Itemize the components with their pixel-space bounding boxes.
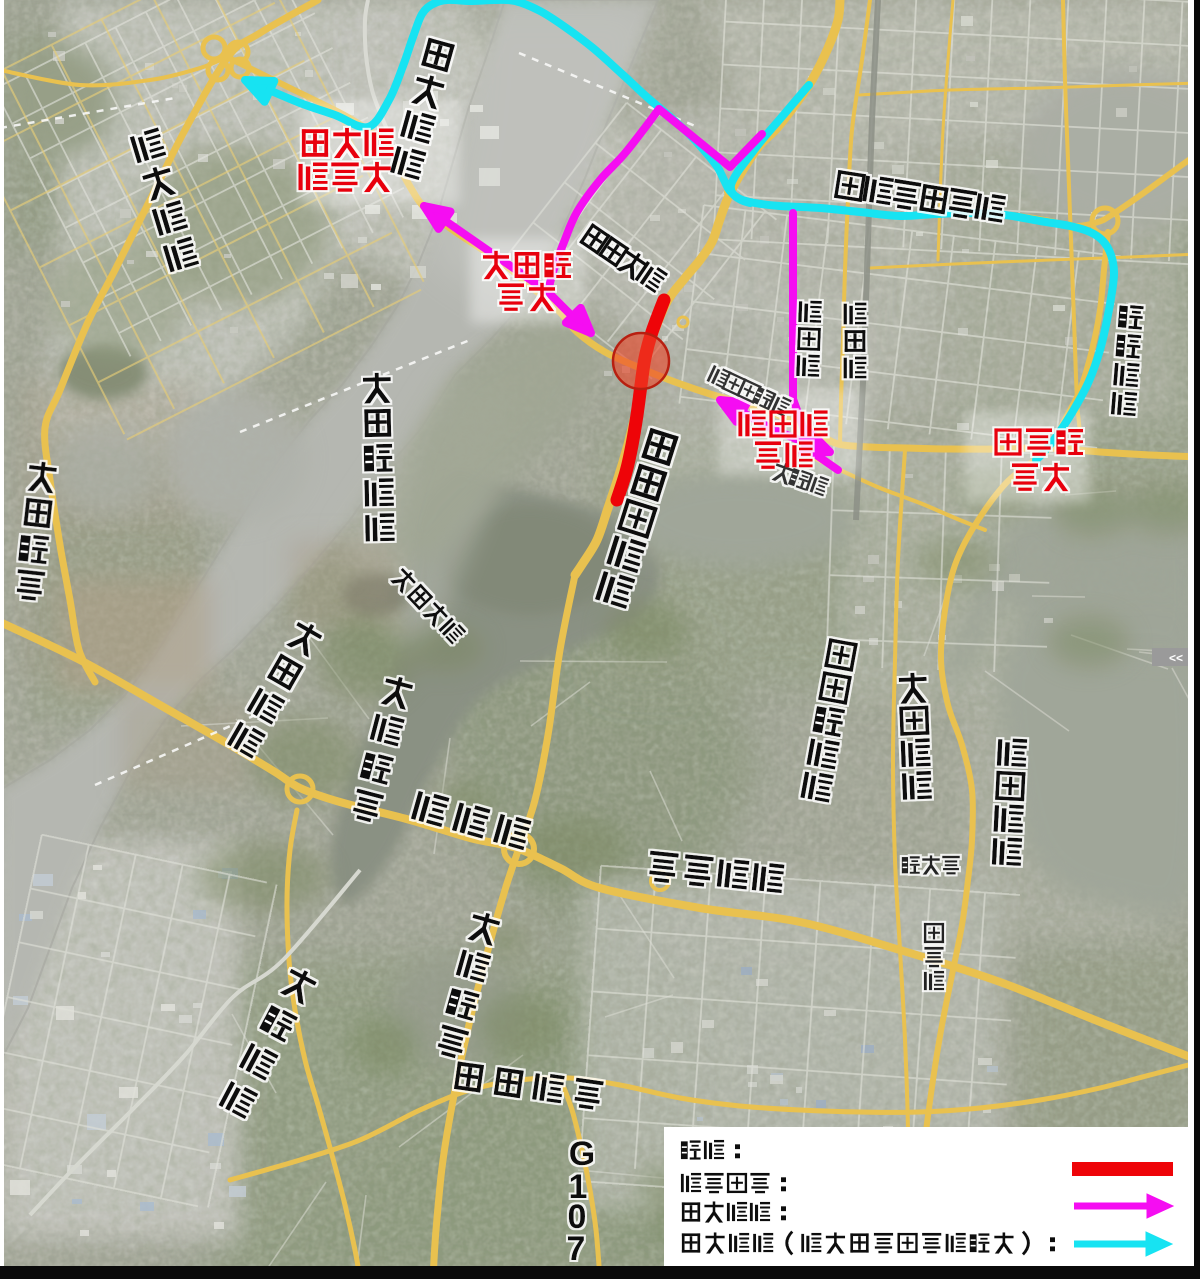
svg-text:7: 7 (567, 1230, 586, 1268)
svg-text:<<: << (1169, 651, 1183, 665)
